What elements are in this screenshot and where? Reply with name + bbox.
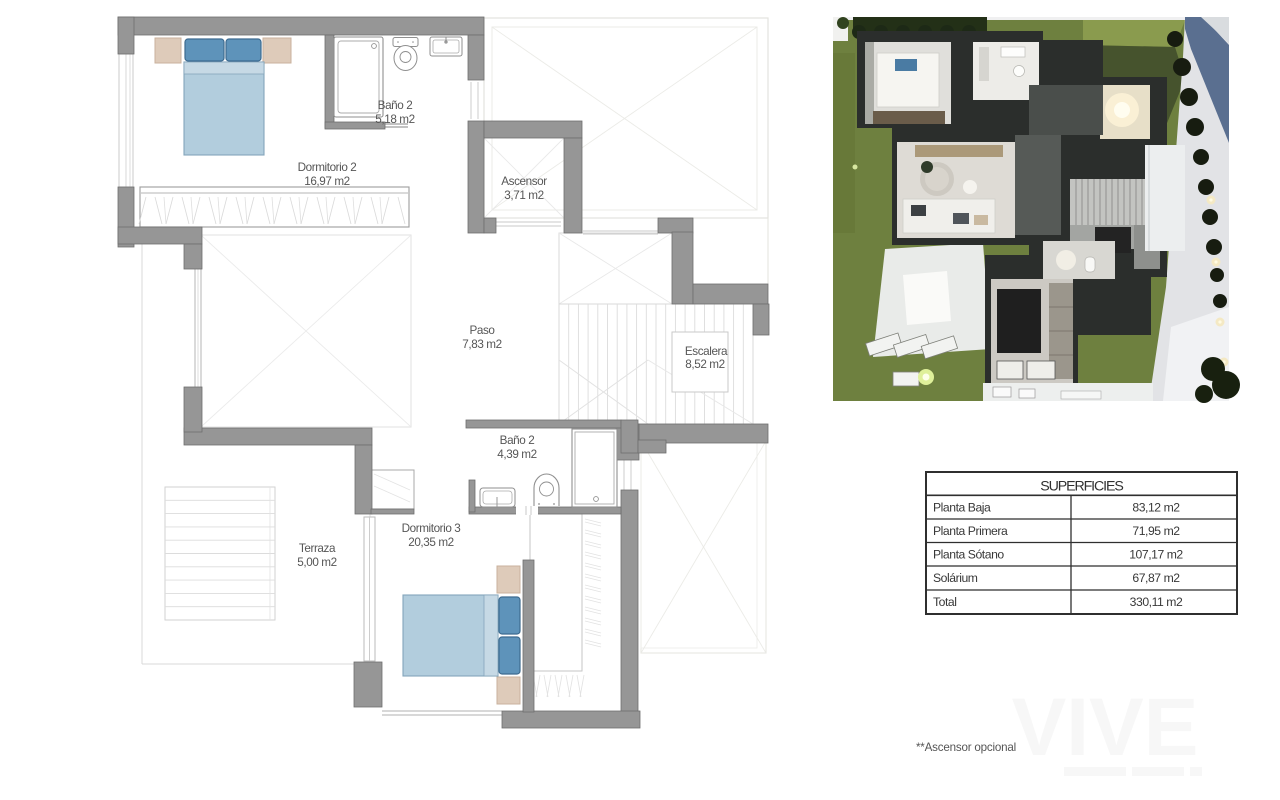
svg-text:71,95 m2: 71,95 m2 bbox=[1132, 524, 1180, 538]
svg-text:107,17 m2: 107,17 m2 bbox=[1129, 548, 1183, 562]
svg-text:Dormitorio 2: Dormitorio 2 bbox=[298, 161, 357, 174]
svg-text:VIVE: VIVE bbox=[1012, 682, 1199, 773]
svg-text:Escalera: Escalera bbox=[685, 345, 728, 358]
svg-text:16,97 m2: 16,97 m2 bbox=[304, 175, 350, 188]
svg-text:20,35 m2: 20,35 m2 bbox=[408, 536, 454, 549]
svg-text:5,18 m2: 5,18 m2 bbox=[375, 113, 414, 126]
svg-text:5,00 m2: 5,00 m2 bbox=[297, 556, 336, 569]
svg-text:67,87 m2: 67,87 m2 bbox=[1132, 571, 1180, 585]
svg-text:4,39 m2: 4,39 m2 bbox=[497, 448, 536, 461]
svg-text:Terraza: Terraza bbox=[299, 542, 336, 555]
svg-text:Paso: Paso bbox=[469, 324, 495, 337]
svg-text:Ascensor: Ascensor bbox=[501, 175, 547, 188]
svg-text:83,12 m2: 83,12 m2 bbox=[1132, 501, 1180, 515]
svg-text:Total: Total bbox=[933, 595, 957, 609]
svg-text:Planta Baja: Planta Baja bbox=[933, 501, 991, 515]
svg-text:Planta Sótano: Planta Sótano bbox=[933, 548, 1004, 562]
svg-text:Baño 2: Baño 2 bbox=[500, 434, 535, 447]
svg-text:Dormitorio 3: Dormitorio 3 bbox=[402, 522, 461, 535]
svg-text:3,71 m2: 3,71 m2 bbox=[504, 189, 543, 202]
svg-text:Baño 2: Baño 2 bbox=[378, 99, 413, 112]
svg-text:330,11 m2: 330,11 m2 bbox=[1130, 595, 1183, 609]
svg-text:Solárium: Solárium bbox=[933, 571, 978, 585]
svg-text:**Ascensor opcional: **Ascensor opcional bbox=[916, 741, 1016, 754]
svg-text:7,83 m2: 7,83 m2 bbox=[462, 338, 501, 351]
svg-text:8,52 m2: 8,52 m2 bbox=[685, 358, 724, 371]
svg-text:Planta Primera: Planta Primera bbox=[933, 524, 1008, 538]
svg-text:SUPERFICIES: SUPERFICIES bbox=[1040, 479, 1123, 495]
